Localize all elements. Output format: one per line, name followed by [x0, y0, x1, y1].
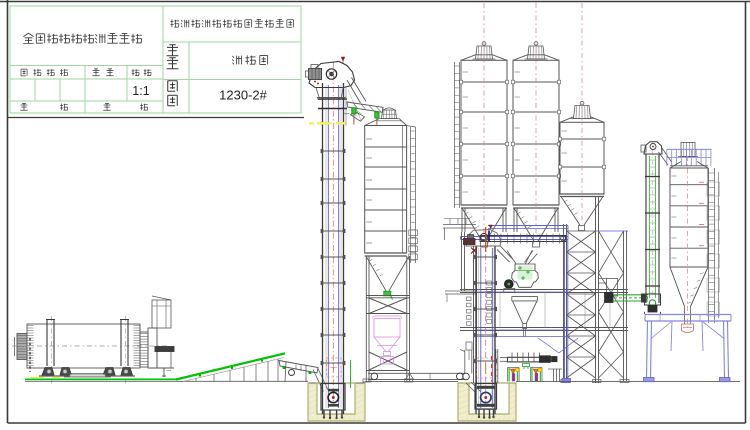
svg-text:1230-2#: 1230-2#	[219, 88, 267, 103]
svg-text:1:1: 1:1	[132, 84, 149, 98]
